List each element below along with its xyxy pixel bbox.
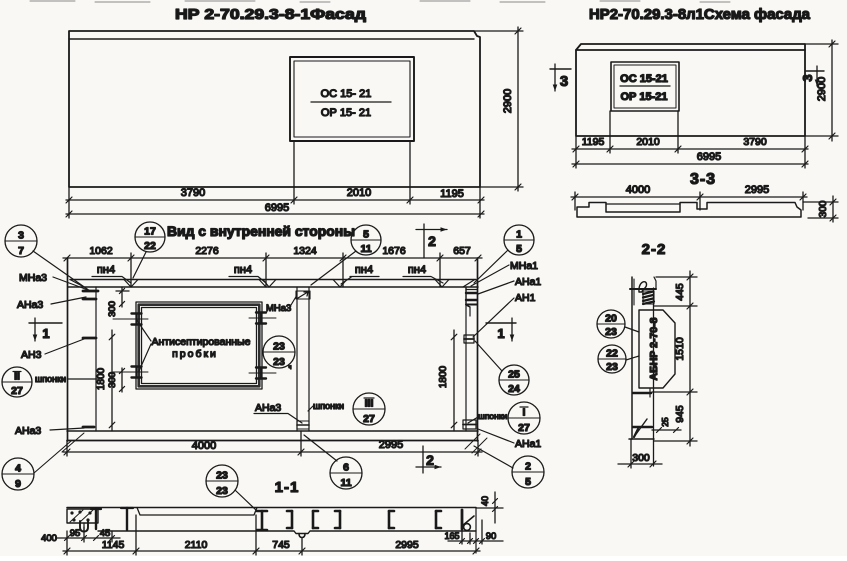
svg-text:1324: 1324 [293,245,317,257]
svg-text:90: 90 [486,531,497,542]
svg-text:2900: 2900 [502,89,514,113]
svg-text:23: 23 [216,470,228,482]
svg-text:5: 5 [525,476,531,488]
svg-text:1195: 1195 [440,188,464,200]
svg-text:ОС 15- 21: ОС 15- 21 [321,88,372,100]
svg-text:АБНР 2-70-8: АБНР 2-70-8 [648,317,660,380]
svg-text:1145: 1145 [102,539,125,551]
svg-text:шпонки: шпонки [478,411,508,421]
svg-text:22: 22 [606,348,618,360]
svg-text:657: 657 [453,245,471,257]
svg-text:2: 2 [428,233,436,249]
svg-text:2010: 2010 [636,136,660,148]
svg-text:23: 23 [606,361,618,373]
svg-text:АНа3: АНа3 [15,425,41,437]
svg-text:45: 45 [100,528,111,539]
svg-text:22: 22 [144,240,156,252]
svg-text:7: 7 [18,245,24,257]
svg-text:1510: 1510 [674,337,686,361]
svg-text:2010: 2010 [347,187,371,199]
svg-text:300: 300 [632,452,650,464]
svg-text:4: 4 [15,463,21,475]
svg-text:5: 5 [363,229,369,241]
svg-text:ОС 15-21: ОС 15-21 [620,73,668,85]
svg-text:24: 24 [508,383,520,395]
svg-text:6: 6 [343,462,349,474]
svg-text:1800: 1800 [438,365,449,388]
svg-text:165: 165 [444,531,459,541]
svg-text:2110: 2110 [185,539,208,551]
svg-text:2995: 2995 [395,539,419,551]
svg-text:1: 1 [516,229,522,241]
svg-text:23: 23 [273,341,285,353]
svg-text:27: 27 [11,385,23,397]
svg-text:3790: 3790 [743,136,767,148]
svg-text:ОР 15- 21: ОР 15- 21 [321,107,371,119]
svg-text:4000: 4000 [192,440,216,452]
svg-text:27: 27 [363,413,375,425]
svg-text:300: 300 [818,200,829,217]
svg-text:3-3: 3-3 [690,171,716,188]
svg-text:Вид с внутренней стороны: Вид с внутренней стороны [167,224,355,239]
svg-text:300: 300 [107,301,118,317]
svg-text:2995: 2995 [745,184,769,196]
svg-text:МНа1: МНа1 [510,260,538,272]
svg-text:6995: 6995 [265,202,289,214]
svg-text:1-1: 1-1 [275,479,300,496]
svg-text:1800: 1800 [96,367,107,390]
svg-text:1195: 1195 [582,136,605,148]
svg-text:23: 23 [605,326,617,338]
svg-text:АНа1: АНа1 [515,276,541,288]
svg-text:9: 9 [15,478,21,490]
svg-text:пн4: пн4 [97,264,115,276]
svg-text:пн4: пн4 [355,264,373,276]
svg-text:2276: 2276 [195,245,219,257]
svg-text:20: 20 [605,313,617,325]
svg-text:2: 2 [525,461,531,473]
svg-text:17: 17 [144,226,156,238]
svg-text:4000: 4000 [626,184,650,196]
svg-text:пн4: пн4 [234,264,252,276]
svg-text:шпонки: шпонки [313,401,344,411]
svg-text:АНа3: АНа3 [17,299,43,311]
svg-text:6995: 6995 [697,151,721,163]
svg-text:Антисептированные: Антисептированные [152,336,251,348]
svg-text:745: 745 [272,539,290,551]
svg-text:АН1: АН1 [515,292,536,304]
svg-text:2900: 2900 [816,77,828,101]
svg-text:I: I [523,407,526,419]
svg-text:11: 11 [360,243,371,255]
svg-text:27: 27 [518,422,530,434]
svg-text:АН3: АН3 [21,349,42,361]
svg-text:2-2: 2-2 [642,241,667,258]
svg-text:шпонки: шпонки [35,374,66,384]
svg-text:25: 25 [660,417,670,427]
svg-text:АНа3: АНа3 [255,402,281,414]
svg-text:пробки: пробки [172,348,218,360]
svg-text:II: II [14,371,20,383]
svg-text:НР 2-70.29.3-8-1Фасад: НР 2-70.29.3-8-1Фасад [175,7,366,23]
svg-text:445: 445 [674,283,686,301]
svg-text:1062: 1062 [89,245,113,257]
svg-text:11: 11 [340,477,351,489]
svg-text:МНа3: МНа3 [266,303,291,314]
svg-text:2: 2 [426,452,434,468]
svg-text:5: 5 [516,243,522,255]
svg-text:3: 3 [800,74,815,81]
svg-text:1: 1 [42,326,49,341]
svg-text:3: 3 [18,230,24,242]
svg-text:1: 1 [497,326,504,341]
svg-text:НР2-70.29.3-8л1Схема фасада: НР2-70.29.3-8л1Схема фасада [589,7,811,23]
svg-text:ОР 15-21: ОР 15-21 [620,91,667,103]
svg-text:3790: 3790 [181,187,205,199]
svg-text:23: 23 [273,356,285,368]
svg-text:23: 23 [216,485,228,497]
svg-text:3: 3 [560,73,568,90]
svg-text:945: 945 [674,405,686,423]
svg-text:АНа1: АНа1 [515,438,541,450]
svg-text:1676: 1676 [382,245,406,257]
svg-text:ч: ч [288,365,291,371]
svg-text:40: 40 [480,496,490,506]
svg-text:МНа3: МНа3 [19,272,47,284]
svg-text:95: 95 [70,528,81,539]
svg-text:2995: 2995 [379,439,403,451]
svg-text:III: III [365,398,374,410]
svg-text:пн4: пн4 [408,264,426,276]
svg-text:25: 25 [508,369,520,381]
svg-text:400: 400 [41,533,57,544]
